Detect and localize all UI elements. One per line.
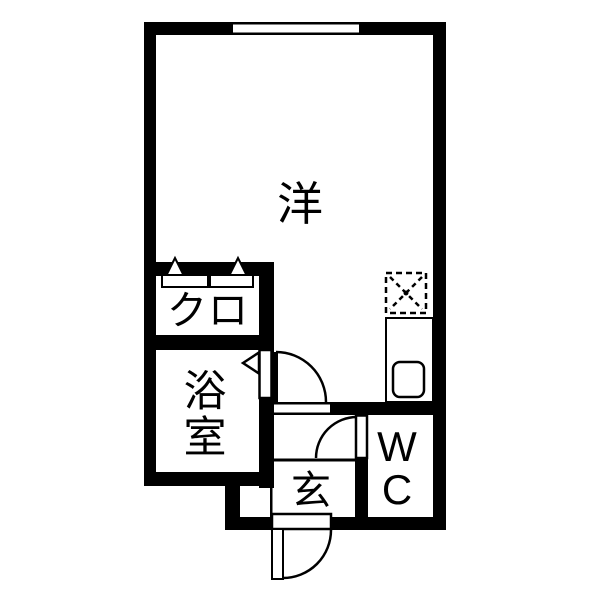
entrance-door-closed [272, 514, 331, 529]
window [232, 24, 360, 34]
main-room-door-arc [276, 352, 326, 402]
entrance-door-leaf [272, 529, 283, 579]
bathroom-label-char2: 室 [184, 415, 227, 461]
floor-plan: 洋 クロ 浴 室 玄 W C [0, 0, 600, 600]
kitchen-sink-icon [393, 362, 424, 397]
stove-icon [386, 273, 426, 313]
entrance-door-arc [283, 530, 331, 578]
wall-right [433, 22, 446, 530]
wall-left [144, 22, 156, 486]
closet-shelf-bar [162, 275, 208, 287]
main-room-label: 洋 [277, 181, 323, 227]
wall-closet-top [144, 262, 274, 276]
wall-closet-bathroom-divider [144, 335, 274, 350]
bathroom-door-arrow-icon [243, 353, 259, 374]
wc-label-char1: W [377, 425, 417, 468]
bathroom-label: 浴 室 [184, 369, 227, 461]
wall-wc-left [355, 458, 368, 517]
closet-label: クロ [167, 291, 249, 331]
genkan-step-line [274, 459, 355, 462]
entrance-alcove-divider [270, 486, 273, 517]
main-door-threshold [273, 404, 331, 414]
wall-bathroom-bottom [144, 472, 274, 486]
bathroom-label-char1: 浴 [184, 369, 227, 415]
wall-bottom [225, 517, 446, 530]
wc-door-leaf [356, 416, 367, 459]
wc-label-char2: C [377, 468, 417, 511]
wc-label: W C [377, 425, 417, 511]
main-room-door-leaf [273, 352, 279, 402]
wc-door-arc [316, 417, 357, 458]
closet-shelf-bar [210, 275, 253, 287]
bathroom-door-leaf [260, 350, 272, 398]
entrance-label: 玄 [291, 471, 331, 511]
